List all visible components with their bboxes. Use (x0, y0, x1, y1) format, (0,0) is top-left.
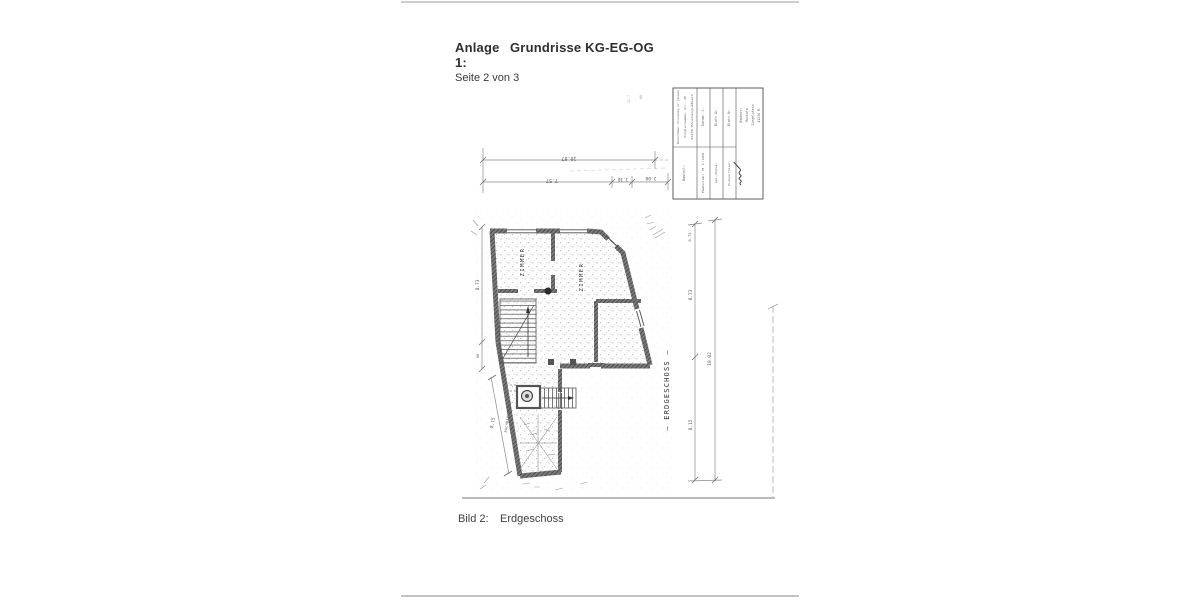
dim-right-upper: 8.73 (688, 289, 694, 300)
title-block-project-line1: Bauvorhaben: Verwendung der Fassade (676, 90, 680, 144)
page-top-edge (401, 1, 799, 3)
right-dimension-lines (688, 217, 722, 483)
title-block-scale: Maßstab: M 1:100 (701, 153, 705, 193)
page-bottom-edge (401, 595, 799, 597)
figure-caption-text: Erdgeschoss (500, 513, 564, 525)
title-block-sheet-size: Blatt Gr. (714, 108, 718, 126)
title-block-text: Bauvorhaben: Verwendung der Fassade Zieg… (676, 90, 761, 193)
title-block-owner1: Bauherr: (739, 107, 743, 122)
title-block-author: Planverfasser: (727, 160, 731, 185)
dim-top-total: 10.87 (561, 155, 576, 161)
title-block-drawn: gez./Datum: (714, 163, 718, 183)
dim-top-c: 2.00 (645, 175, 656, 181)
page-title: Grundrisse KG-EG-OG (510, 40, 654, 70)
title-block-owner2: Mustafa (745, 108, 749, 122)
title-block-owner3: Ziegelstein (751, 104, 755, 125)
dim-top-a: 7.57 (546, 177, 558, 183)
room-label-2: ZIMMER (579, 263, 585, 292)
document-header: Anlage 1: Grundrisse KG-EG-OG Seite 2 vo… (455, 40, 654, 84)
top-dimension-lines (480, 148, 671, 193)
level-annotation-a: 41.7 (627, 95, 631, 103)
title-block-project-line2: Zieglernummer Str. 40 (683, 96, 687, 138)
attachment-label: Anlage 1: (455, 40, 510, 70)
dim-top-b: 1.30 (617, 177, 628, 182)
door-smudge (545, 288, 552, 295)
title-block-owner4: 41236 M. (757, 107, 761, 122)
floor-label: — ERDGESCHOSS — (663, 349, 671, 430)
wall-pier (570, 359, 576, 365)
staircase-upper (500, 299, 536, 363)
level-annotation-b: NN (639, 95, 643, 99)
dim-left-small: 50 (475, 353, 480, 358)
room-label-1: ZIMMER (520, 248, 526, 277)
figure-caption: Bild 2: Erdgeschoss (458, 513, 564, 525)
dim-right-top-small: 0.72 (687, 232, 692, 241)
dim-left-height: 8.73 (475, 279, 481, 290)
page-subtitle: Seite 2 von 3 (455, 72, 654, 84)
floor-plan-drawing: Bauvorhaben: Verwendung der Fassade Zieg… (460, 85, 780, 505)
figure-caption-label: Bild 2: (458, 513, 500, 525)
staircase-lower (540, 388, 576, 408)
title-block-sheet-no: Blatt Nr. (727, 108, 731, 126)
dim-right-total: 18.02 (707, 352, 713, 366)
signature (729, 162, 745, 185)
title-block-date: Datum: 1. (701, 108, 705, 126)
wall-pier (548, 359, 554, 365)
title-block-bauteil: Bauteil: (682, 165, 686, 181)
dim-right-lower: 8.15 (688, 419, 694, 430)
title-block-project-line3: 41236 Mönchengladbach (690, 94, 694, 140)
